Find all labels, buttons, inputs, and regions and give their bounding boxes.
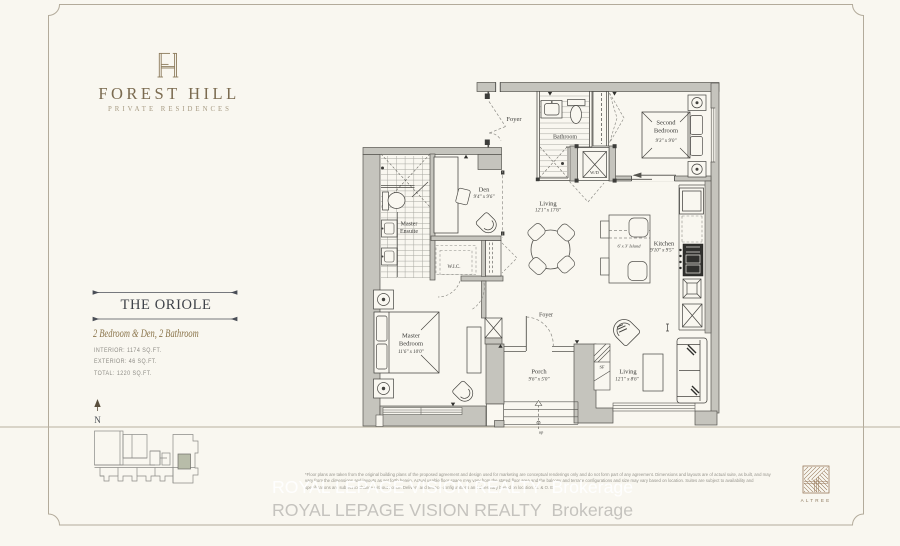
svg-text:11'6" x 10'0": 11'6" x 10'0" [398, 350, 425, 355]
svg-text:Foyer: Foyer [539, 313, 553, 319]
svg-text:SF: SF [599, 365, 605, 370]
svg-text:12'1" x 17'6": 12'1" x 17'6" [535, 209, 562, 214]
svg-text:9'4" x 9'6": 9'4" x 9'6" [473, 195, 495, 200]
svg-text:12'1" x 8'6": 12'1" x 8'6" [615, 378, 639, 383]
svg-text:Second: Second [656, 120, 676, 127]
svg-text:Living: Living [619, 369, 637, 376]
svg-text:6' x 3' Island: 6' x 3' Island [617, 244, 641, 249]
svg-text:9'6" x 5'0": 9'6" x 5'0" [528, 378, 550, 383]
svg-text:Bedroom: Bedroom [399, 341, 423, 348]
svg-text:Living: Living [539, 201, 557, 208]
svg-text:Ensuite: Ensuite [400, 229, 418, 235]
svg-text:Den: Den [479, 187, 491, 194]
svg-text:W/D: W/D [590, 170, 600, 175]
svg-text:up: up [539, 430, 544, 435]
svg-text:Master: Master [402, 333, 421, 340]
svg-text:W.I.C.: W.I.C. [447, 265, 460, 270]
svg-text:9'10" x 9'5": 9'10" x 9'5" [650, 249, 674, 254]
svg-text:9'3" x 9'0": 9'3" x 9'0" [655, 139, 677, 144]
svg-text:Bedroom: Bedroom [654, 128, 678, 135]
svg-text:Bathroom: Bathroom [553, 135, 577, 141]
svg-text:Master: Master [401, 222, 418, 228]
svg-text:Kitchen: Kitchen [654, 241, 675, 248]
svg-text:Foyer: Foyer [506, 116, 522, 123]
svg-text:Porch: Porch [531, 369, 547, 376]
